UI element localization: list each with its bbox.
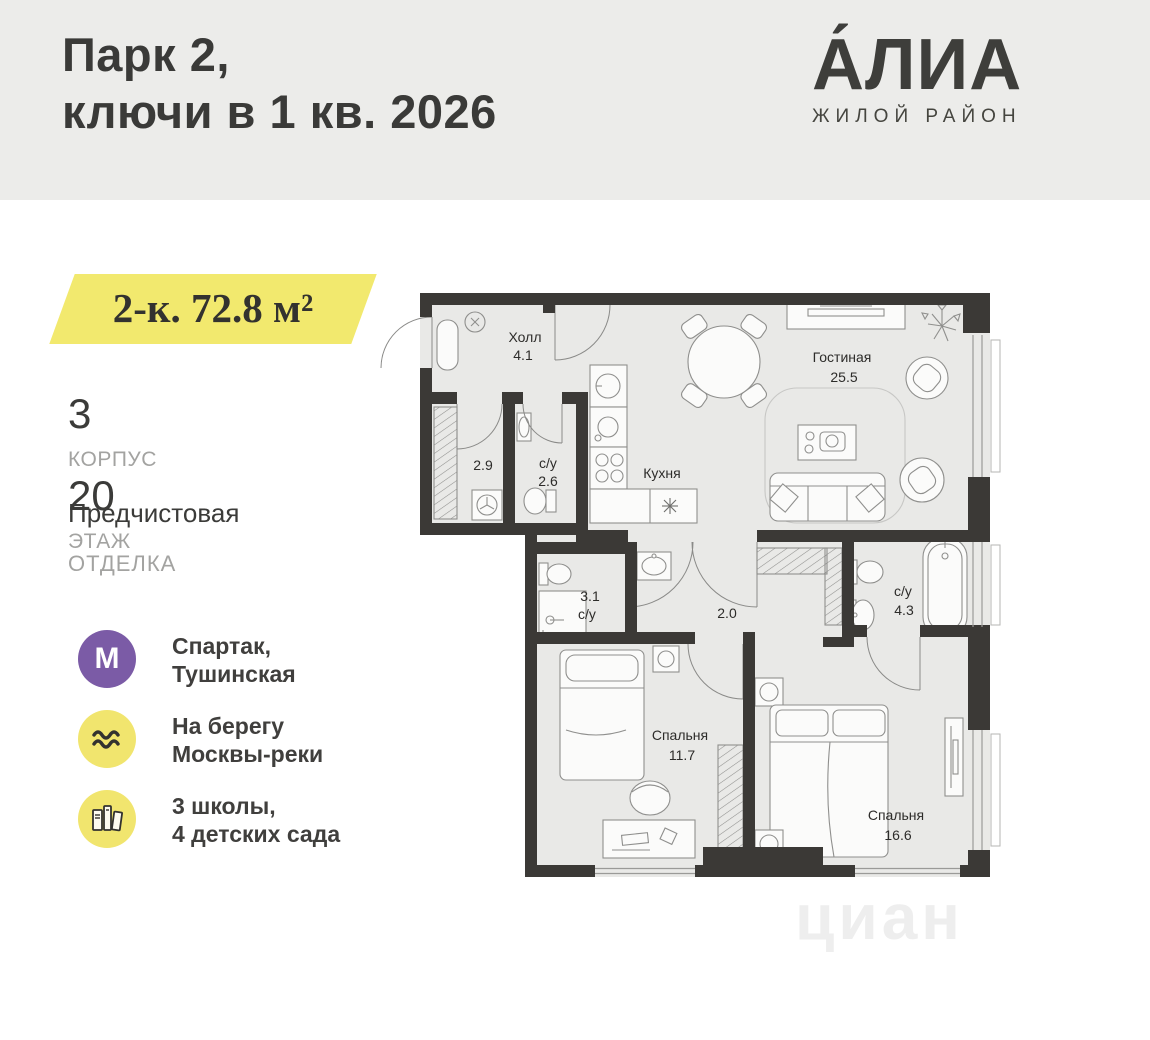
floor-plan: Холл 4.1 2.9 с/у 2.6 Кухня Гостиная 25.5… [350, 290, 1050, 920]
tv-console [787, 303, 905, 329]
label-wardrobe-area: 2.9 [473, 457, 493, 473]
bathtub [923, 538, 967, 636]
closet-horizontal [757, 548, 827, 574]
feature-metro-text: Спартак, Тушинская [172, 632, 296, 688]
building-value: 3 [68, 390, 218, 438]
label-bath1-name: с/у [539, 455, 557, 471]
brand-logo-subtitle: ЖИЛОЙ РАЙОН [812, 106, 1092, 128]
label-bedroom1-area: 11.7 [669, 747, 695, 763]
hood-symbol [662, 498, 678, 514]
sofa [770, 473, 885, 521]
header-band: Парк 2, ключи в 1 кв. 2026 А́ЛИА ЖИЛОЙ Р… [0, 0, 1150, 200]
label-bedroom2-area: 16.6 [884, 827, 911, 843]
closet-bedroom [718, 745, 743, 855]
finish-value: Предчистовая [68, 498, 239, 529]
river-icon [78, 710, 136, 768]
closet-vertical [825, 548, 842, 625]
kitchen-counter [590, 489, 697, 523]
hall-closet [437, 320, 458, 370]
bath2-sink [637, 552, 671, 580]
label-bath3-area: 4.3 [894, 602, 914, 618]
title-line-2: ключи в 1 кв. 2026 [62, 83, 497, 140]
label-corridor-area: 2.0 [717, 605, 737, 621]
bath1-sink [517, 413, 531, 441]
feature-schools-text: 3 школы, 4 детских сада [172, 792, 340, 848]
metro-icon: М [78, 630, 136, 688]
label-living-name: Гостиная [813, 349, 872, 365]
dining-table [680, 313, 769, 410]
cian-watermark: циан [795, 880, 964, 954]
label-bath3-name: с/у [894, 583, 912, 599]
coffee-table [798, 425, 856, 460]
label-kitchen-name: Кухня [643, 465, 680, 481]
finish-label: ОТДЕЛКА [68, 551, 239, 577]
armchair-1 [906, 357, 948, 399]
label-bedroom2-name: Спальня [868, 807, 924, 823]
armchair-2 [900, 458, 944, 502]
bedroom2-nightstand-top [755, 678, 783, 706]
label-hall-area: 4.1 [513, 347, 533, 363]
brand-logo: А́ЛИА ЖИЛОЙ РАЙОН [812, 26, 1092, 128]
brand-logo-name: А́ЛИА [812, 26, 1092, 104]
building-stat: 3 КОРПУС [68, 390, 218, 472]
label-bath2-name: с/у [578, 606, 596, 622]
label-bedroom1-name: Спальня [652, 727, 708, 743]
floor-plan-svg: Холл 4.1 2.9 с/у 2.6 Кухня Гостиная 25.5… [350, 290, 1050, 915]
wardrobe-rack [434, 407, 457, 519]
page-title: Парк 2, ключи в 1 кв. 2026 [62, 26, 497, 140]
bath2-toilet [539, 563, 571, 585]
finish-block: Предчистовая ОТДЕЛКА [68, 498, 239, 577]
label-bath1-area: 2.6 [538, 473, 558, 489]
bedroom1-bed [560, 650, 644, 780]
bedroom2-bed [770, 705, 888, 857]
area-badge: 2-к. 72.8 м² [49, 274, 376, 344]
area-badge-text: 2-к. 72.8 м² [62, 274, 364, 344]
bath1-toilet [524, 488, 556, 514]
schools-icon [78, 790, 136, 848]
label-bath2-area: 3.1 [580, 588, 600, 604]
bedroom2-dresser [945, 718, 963, 796]
feature-river-text: На берегу Москвы-реки [172, 712, 323, 768]
label-hall-name: Холл [509, 329, 542, 345]
washing-machine-icon [472, 490, 502, 520]
building-label: КОРПУС [68, 448, 218, 472]
title-line-1: Парк 2, [62, 26, 497, 83]
bedroom1-nightstand [653, 646, 679, 672]
label-living-area: 25.5 [830, 369, 857, 385]
